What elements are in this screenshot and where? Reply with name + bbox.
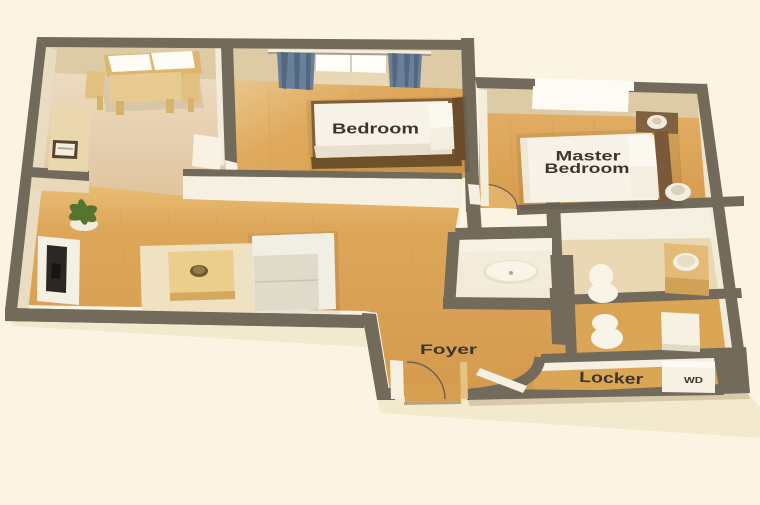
svg-text:Bedroom: Bedroom [545, 161, 630, 176]
svg-text:Locker: Locker [579, 369, 644, 388]
svg-text:WD: WD [684, 375, 703, 385]
svg-text:Bedroom: Bedroom [332, 122, 419, 138]
svg-text:Foyer: Foyer [420, 341, 478, 357]
